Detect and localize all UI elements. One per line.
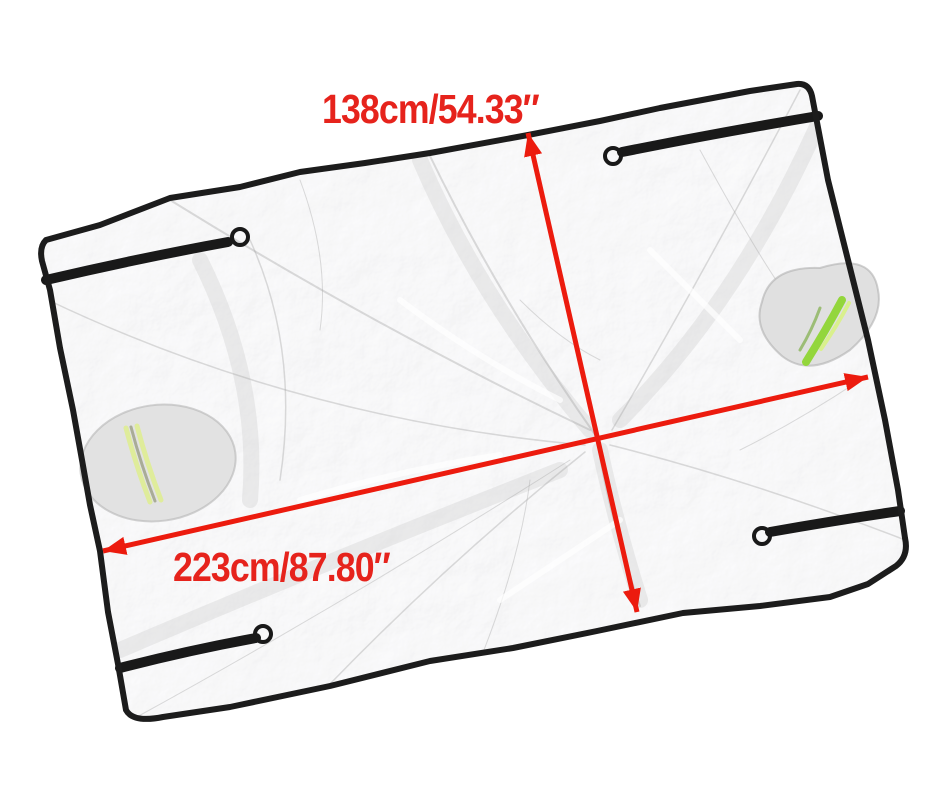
width-dimension-label: 138cm/54.33″ xyxy=(322,86,539,133)
length-dimension-label: 223cm/87.80″ xyxy=(173,544,390,591)
product-image: 138cm/54.33″ 223cm/87.80″ xyxy=(0,0,950,800)
